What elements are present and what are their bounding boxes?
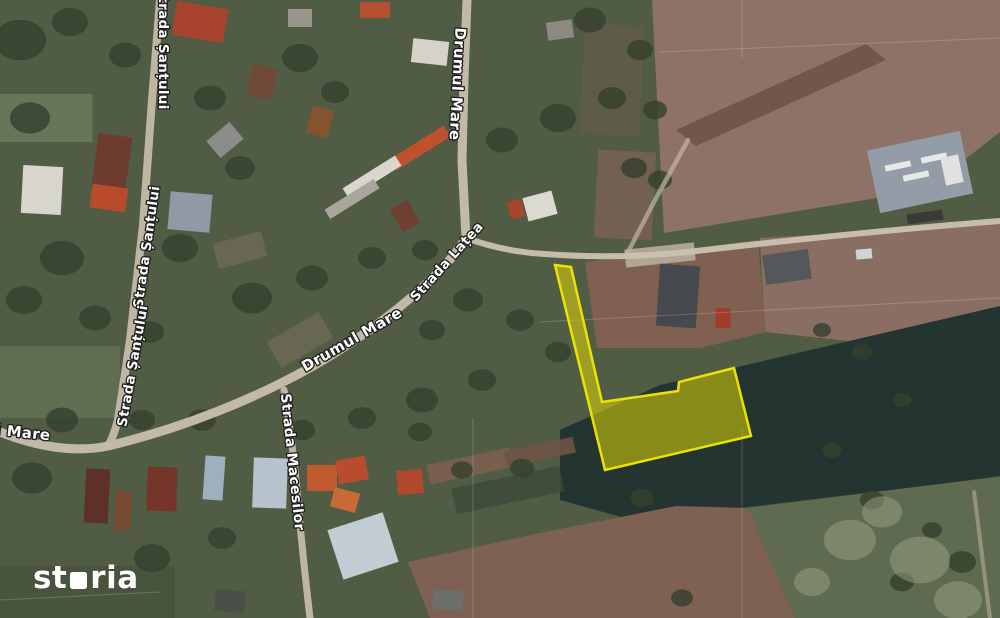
building-roof <box>214 589 246 614</box>
tree-blob <box>282 44 318 72</box>
tree-blob <box>453 288 483 311</box>
tree-blob <box>506 309 534 331</box>
storia-logo-text-st: st <box>33 560 67 596</box>
ground-patch <box>579 24 645 137</box>
tree-blob <box>162 234 198 262</box>
tree-blob <box>419 320 445 340</box>
tree-blob <box>627 40 653 60</box>
building-roof <box>656 264 700 329</box>
building-roof <box>202 455 225 500</box>
tree-blob <box>134 544 170 572</box>
tree-blob <box>643 101 667 120</box>
building-roof <box>246 64 277 100</box>
tree-blob <box>12 462 52 493</box>
tree-blob <box>948 551 976 573</box>
tree-blob <box>630 489 654 508</box>
tree-blob <box>545 342 571 362</box>
building-roof <box>252 457 288 508</box>
tree-blob <box>408 423 432 442</box>
tree-blob <box>468 369 496 391</box>
tree-blob <box>852 344 872 360</box>
building-roof <box>716 308 731 328</box>
scrub-blob <box>824 520 876 561</box>
tree-blob <box>540 104 576 132</box>
building-roof <box>114 492 132 531</box>
tree-blob <box>232 282 272 313</box>
building-roof <box>546 19 574 40</box>
tree-blob <box>510 459 534 478</box>
building-roof <box>396 469 424 495</box>
tree-blob <box>52 8 88 36</box>
building-roof <box>335 456 369 485</box>
satellite-map-canvas[interactable]: Strada ȘanțuluiStrada ȘanțuluiStrada Șan… <box>0 0 1000 618</box>
building-roof <box>288 9 312 27</box>
tree-blob <box>822 442 842 458</box>
tree-blob <box>922 522 942 538</box>
tree-blob <box>813 323 831 337</box>
ground-patch <box>0 346 120 418</box>
scrub-blob <box>862 496 902 527</box>
tree-blob <box>451 461 473 478</box>
tree-blob <box>194 86 226 111</box>
storia-logo-text-ria: ria <box>90 560 138 596</box>
scrub-blob <box>890 537 950 584</box>
tree-blob <box>406 388 438 413</box>
tree-blob <box>412 240 438 260</box>
tree-blob <box>598 87 626 109</box>
building-roof <box>762 249 812 285</box>
tree-blob <box>321 81 349 103</box>
tree-blob <box>10 102 50 133</box>
tree-blob <box>40 241 84 275</box>
building-roof <box>307 465 337 491</box>
scrub-blob <box>794 568 830 596</box>
building-roof <box>90 184 129 213</box>
tree-blob <box>486 128 518 153</box>
tree-blob <box>621 158 647 178</box>
building-roof <box>21 165 63 215</box>
building-roof <box>411 38 449 66</box>
tree-blob <box>574 8 606 33</box>
tree-blob <box>79 306 111 331</box>
storia-logo: st ria <box>33 560 139 596</box>
tree-blob <box>6 286 42 314</box>
satellite-map-view[interactable]: Strada ȘanțuluiStrada ȘanțuluiStrada Șan… <box>0 0 1000 618</box>
street-name-label: Strada Șanțului <box>155 0 171 110</box>
tree-blob <box>671 589 693 606</box>
building-roof <box>146 466 178 511</box>
building-roof <box>84 468 111 523</box>
tree-blob <box>208 527 236 549</box>
building-roof <box>360 2 390 18</box>
scrub-blob <box>934 581 982 618</box>
tree-blob <box>893 393 911 407</box>
tree-blob <box>358 247 386 269</box>
tree-blob <box>109 43 141 68</box>
building-roof <box>167 191 212 233</box>
tree-blob <box>296 266 328 291</box>
building-roof <box>432 589 463 611</box>
building-roof <box>856 248 873 259</box>
storia-logo-square-o-icon <box>70 572 87 589</box>
tree-blob <box>225 156 255 179</box>
tree-blob <box>348 407 376 429</box>
tree-blob <box>129 410 155 430</box>
